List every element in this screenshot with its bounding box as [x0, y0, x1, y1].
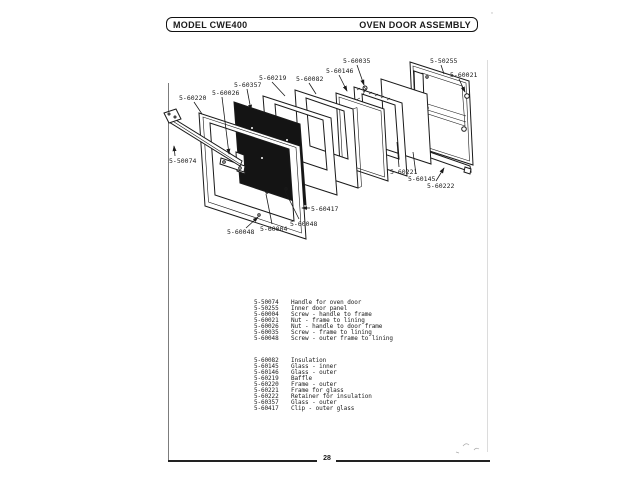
- svg-text:5-60004: 5-60004: [260, 225, 287, 233]
- svg-text:5-60220: 5-60220: [179, 94, 206, 102]
- parts-list-row: 5-60048Screw - outer frame to lining: [254, 336, 393, 342]
- svg-text:5-60146: 5-60146: [326, 67, 353, 75]
- svg-text:5-60219: 5-60219: [259, 74, 286, 82]
- part-label: 5-60219: [259, 74, 286, 96]
- part-description: Clip - outer glass: [291, 405, 354, 412]
- nut-glyph: [462, 127, 467, 132]
- footer-rule-right: [336, 460, 490, 462]
- parts-list: 5-50074Handle for oven door5-50255Inner …: [254, 300, 393, 428]
- parts-list-row: 5-60417Clip - outer glass: [254, 406, 393, 412]
- svg-text:5-60357: 5-60357: [234, 81, 261, 89]
- part-number: 5-60048: [254, 336, 291, 342]
- part-description: Screw - outer frame to lining: [291, 335, 393, 342]
- svg-text:5-60035: 5-60035: [343, 57, 370, 65]
- part-label: 5-60146: [326, 67, 353, 91]
- svg-text:5-50074: 5-50074: [169, 157, 196, 165]
- footer-rule-left: [168, 460, 317, 462]
- svg-text:5-60082: 5-60082: [296, 75, 323, 83]
- svg-text:5-60021: 5-60021: [450, 71, 477, 79]
- svg-text:5-60048: 5-60048: [290, 220, 317, 228]
- svg-text:5-60417: 5-60417: [311, 205, 338, 213]
- part-label: 5-60417: [302, 205, 338, 213]
- svg-text:5-60048: 5-60048: [227, 228, 254, 236]
- part-number: 5-60417: [254, 406, 291, 412]
- svg-text:5-60222: 5-60222: [427, 182, 454, 190]
- part-label: 5-50074: [169, 146, 196, 165]
- parts-list-group: 5-60082Insulation5-60145Glass - inner5-6…: [254, 358, 393, 412]
- part-label: 5-60082: [296, 75, 323, 94]
- part-label: 5-60220: [179, 94, 206, 114]
- page-number: 28: [318, 455, 336, 462]
- svg-text:5-50255: 5-50255: [430, 57, 457, 65]
- svg-text:5-60026: 5-60026: [212, 89, 239, 97]
- nut-glyph: [465, 94, 470, 99]
- catalog-page: MODEL CWE400 OVEN DOOR ASSEMBLY: [0, 0, 640, 480]
- parts-list-group: 5-50074Handle for oven door5-50255Inner …: [254, 300, 393, 342]
